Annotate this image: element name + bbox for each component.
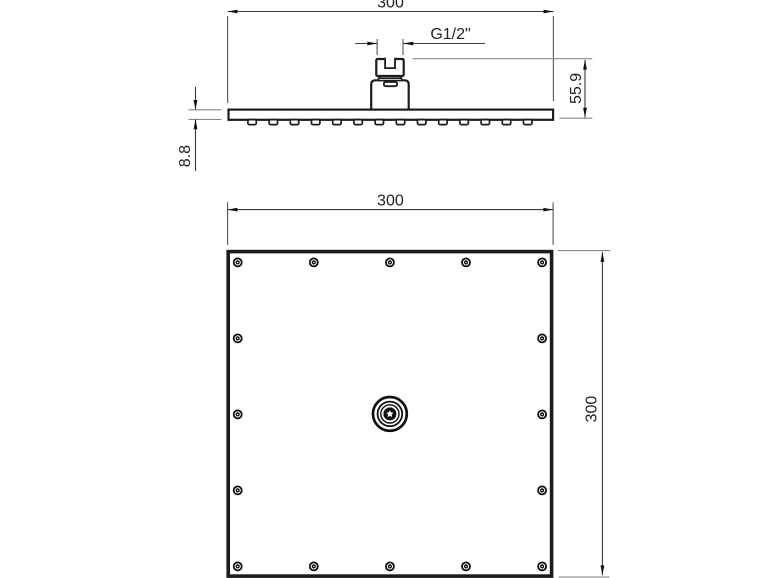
svg-text:300: 300 [584, 396, 601, 423]
svg-text:300: 300 [377, 192, 404, 209]
svg-text:300: 300 [377, 0, 404, 12]
svg-text:G1/2": G1/2" [430, 26, 470, 43]
svg-text:55.9: 55.9 [568, 73, 585, 104]
svg-text:8.8: 8.8 [177, 145, 194, 167]
